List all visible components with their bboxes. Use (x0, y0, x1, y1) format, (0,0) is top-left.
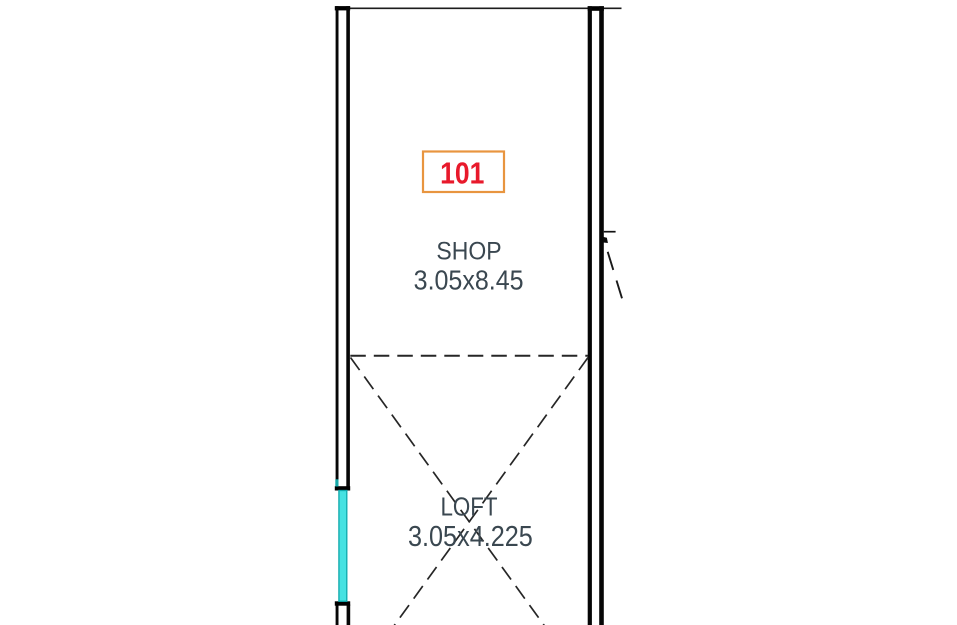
svg-text:101: 101 (440, 157, 484, 191)
svg-text:3.05x4.225: 3.05x4.225 (408, 521, 533, 553)
svg-text:3.05x8.45: 3.05x8.45 (414, 264, 524, 295)
svg-text:LOFT: LOFT (440, 493, 497, 522)
svg-text:SHOP: SHOP (436, 238, 501, 266)
